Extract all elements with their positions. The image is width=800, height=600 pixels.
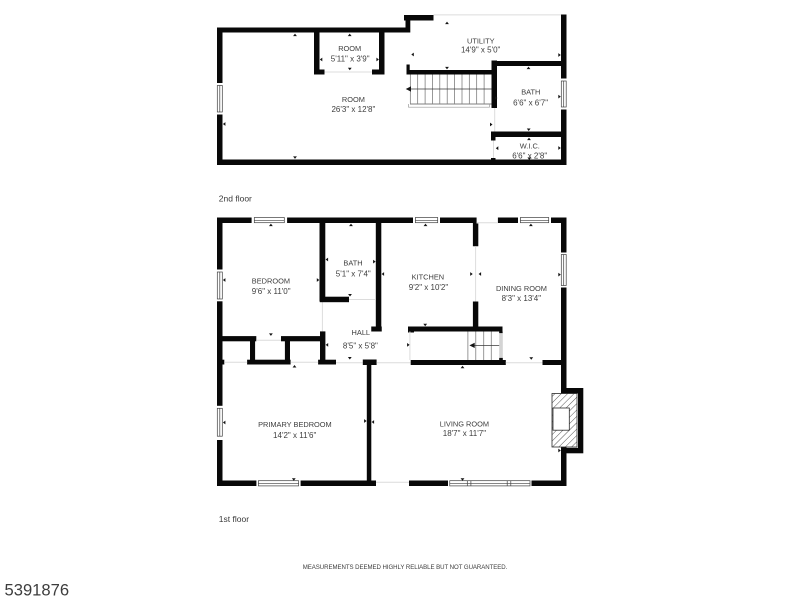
svg-text:2nd floor: 2nd floor (219, 193, 252, 203)
svg-text:6'6" x 6'7": 6'6" x 6'7" (513, 98, 548, 107)
svg-text:18'7" x 11'7": 18'7" x 11'7" (443, 429, 486, 438)
svg-text:9'6" x 11'0": 9'6" x 11'0" (252, 287, 291, 296)
svg-text:W.I.C.: W.I.C. (520, 142, 540, 151)
svg-text:BATH: BATH (521, 88, 540, 97)
svg-text:9'2" x 10'2": 9'2" x 10'2" (409, 283, 449, 292)
svg-text:5391876: 5391876 (5, 580, 70, 599)
svg-text:ROOM: ROOM (338, 44, 361, 53)
svg-text:KITCHEN: KITCHEN (412, 272, 444, 281)
svg-text:1st floor: 1st floor (219, 514, 249, 524)
svg-text:5'1" x 7'4": 5'1" x 7'4" (336, 269, 371, 278)
svg-text:26'3" x 12'8": 26'3" x 12'8" (331, 105, 375, 114)
svg-text:6'6" x 2'8": 6'6" x 2'8" (512, 152, 547, 161)
svg-text:PRIMARY BEDROOM: PRIMARY BEDROOM (258, 420, 332, 429)
svg-text:LIVING ROOM: LIVING ROOM (440, 420, 489, 429)
svg-text:14'9" x 5'0": 14'9" x 5'0" (461, 45, 501, 54)
svg-text:ROOM: ROOM (342, 95, 365, 104)
svg-text:DINING ROOM: DINING ROOM (496, 284, 547, 293)
svg-text:BATH: BATH (343, 258, 362, 267)
svg-text:MEASUREMENTS DEEMED HIGHLY REL: MEASUREMENTS DEEMED HIGHLY RELIABLE BUT … (303, 564, 508, 571)
svg-text:BEDROOM: BEDROOM (252, 277, 290, 286)
svg-text:HALL: HALL (352, 328, 371, 337)
svg-text:8'5" x 5'8": 8'5" x 5'8" (343, 342, 378, 351)
svg-text:14'2" x 11'6": 14'2" x 11'6" (273, 431, 316, 440)
svg-text:5'11" x 3'9": 5'11" x 3'9" (331, 55, 370, 64)
svg-text:8'3" x 13'4": 8'3" x 13'4" (502, 294, 542, 303)
svg-text:UTILITY: UTILITY (467, 36, 495, 45)
